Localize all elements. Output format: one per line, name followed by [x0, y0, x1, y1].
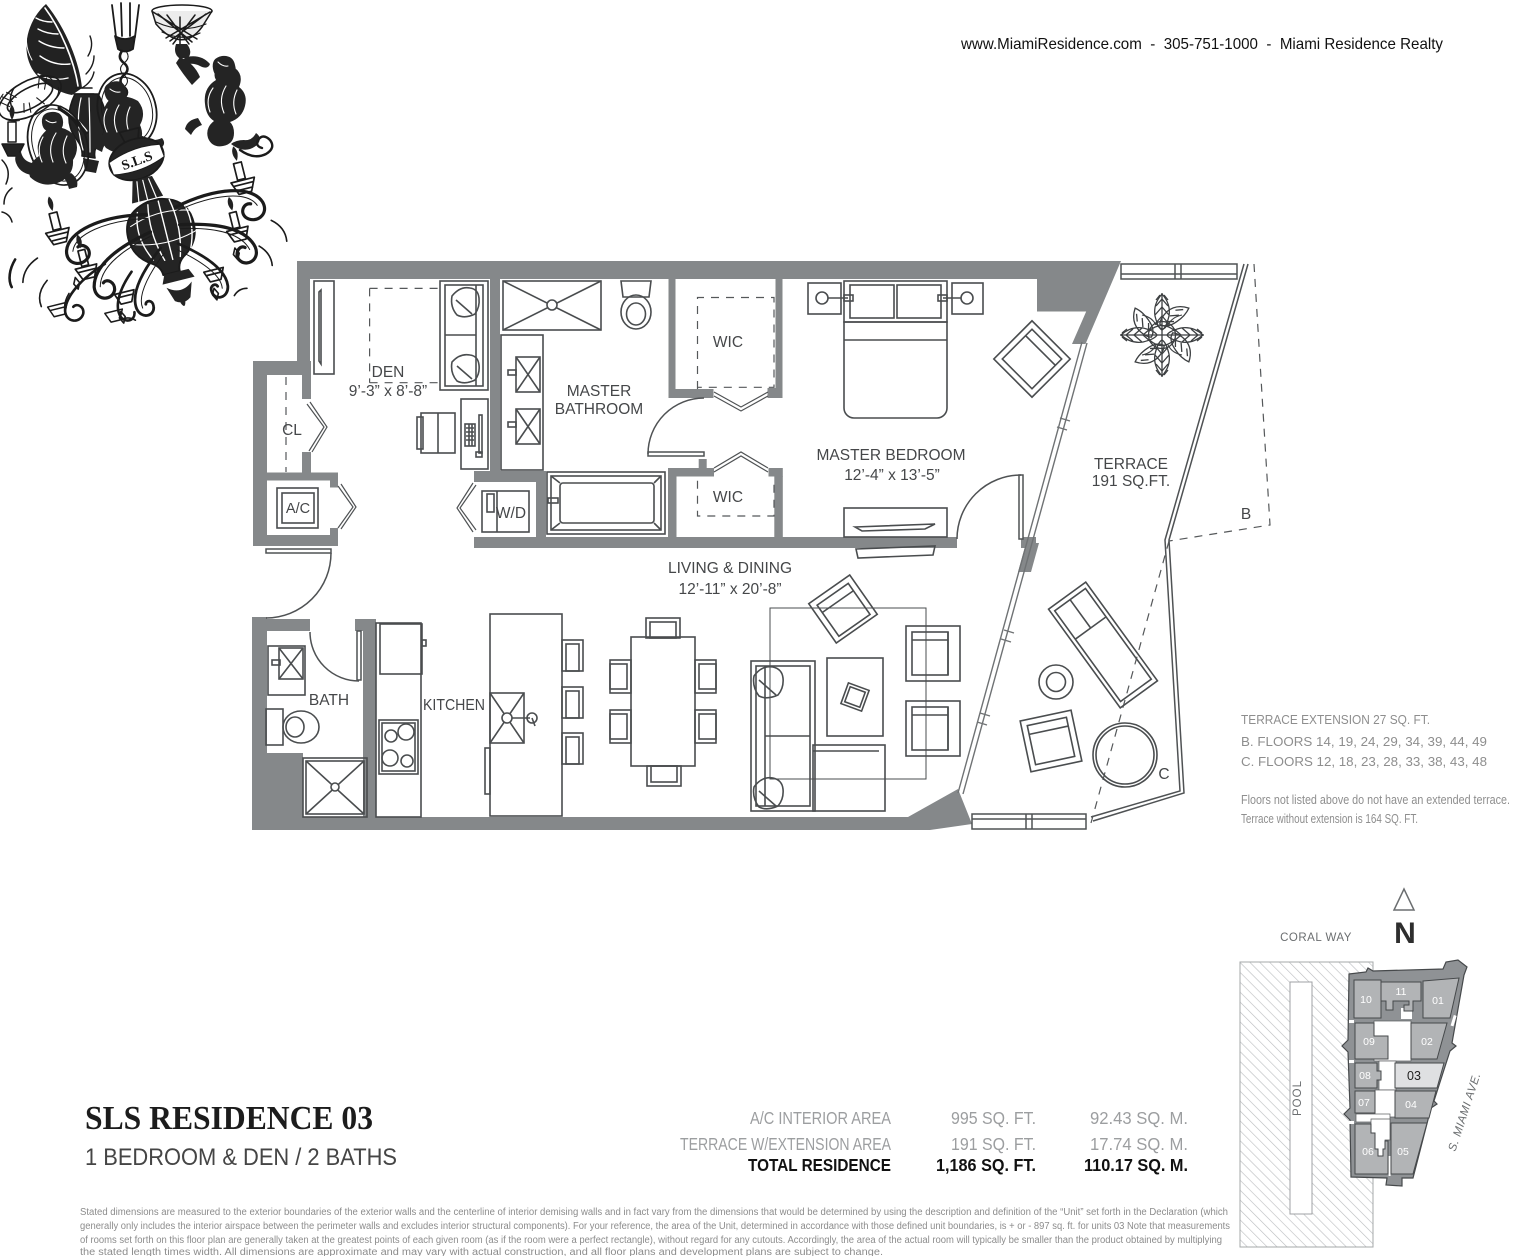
svg-text:TERRACE W/EXTENSION AREA: TERRACE W/EXTENSION AREA: [680, 1134, 891, 1154]
svg-text:B. FLOORS 14, 19, 24, 29, 34,: B. FLOORS 14, 19, 24, 29, 34, 39, 44, 49: [1241, 735, 1487, 749]
svg-text:08: 08: [1359, 1070, 1371, 1082]
svg-text:DEN: DEN: [372, 364, 405, 381]
svg-text:A/C: A/C: [286, 501, 310, 517]
svg-text:1,186 SQ. FT.: 1,186 SQ. FT.: [936, 1155, 1036, 1175]
svg-text:03: 03: [1407, 1069, 1421, 1083]
svg-text:TERRACE: TERRACE: [1094, 456, 1168, 473]
svg-text:12’-11” x 20’-8”: 12’-11” x 20’-8”: [678, 581, 781, 598]
svg-text:11: 11: [1396, 986, 1407, 998]
svg-text:06: 06: [1362, 1146, 1374, 1158]
svg-text:POOL: POOL: [1292, 1080, 1304, 1116]
svg-text:CL: CL: [282, 422, 302, 439]
svg-text:LIVING & DINING: LIVING & DINING: [668, 560, 792, 577]
svg-text:10: 10: [1360, 994, 1372, 1006]
svg-text:1 BEDROOM & DEN / 2 BATHS: 1 BEDROOM & DEN / 2 BATHS: [85, 1144, 397, 1171]
svg-text:110.17 SQ. M.: 110.17 SQ. M.: [1084, 1155, 1188, 1175]
svg-text:04: 04: [1405, 1099, 1417, 1111]
svg-text:WIC: WIC: [713, 334, 743, 351]
svg-text:9’-3” x 8’-8”: 9’-3” x 8’-8”: [349, 383, 427, 400]
svg-text:Terrace without extension is 1: Terrace without extension is 164 SQ. FT.: [1241, 812, 1418, 826]
svg-text:B: B: [1241, 506, 1251, 523]
svg-text:02: 02: [1421, 1036, 1433, 1048]
svg-text:191 SQ. FT.: 191 SQ. FT.: [951, 1134, 1036, 1154]
svg-text:BATHROOM: BATHROOM: [555, 401, 643, 418]
svg-text:01: 01: [1432, 995, 1444, 1007]
svg-text:of rooms set forth on this flo: of rooms set forth on this floor plan ar…: [80, 1235, 1222, 1246]
svg-text:TOTAL RESIDENCE: TOTAL RESIDENCE: [748, 1155, 891, 1175]
svg-text:the stated length times width.: the stated length times width. All dimen…: [80, 1247, 883, 1256]
svg-text:MASTER: MASTER: [567, 383, 632, 400]
svg-text:SLS RESIDENCE 03: SLS RESIDENCE 03: [85, 1100, 373, 1137]
svg-text:BATH: BATH: [309, 692, 349, 709]
svg-text:KITCHEN: KITCHEN: [423, 697, 485, 714]
svg-text:MASTER BEDROOM: MASTER BEDROOM: [817, 447, 966, 464]
svg-text:S. MIAMI AVE.: S. MIAMI AVE.: [1447, 1071, 1484, 1153]
svg-text:CORAL WAY: CORAL WAY: [1280, 932, 1352, 944]
svg-text:191 SQ.FT.: 191 SQ.FT.: [1092, 473, 1170, 490]
svg-text:Floors not listed above do not: Floors not listed above do not have an e…: [1241, 793, 1510, 807]
svg-text:W/D: W/D: [496, 505, 526, 522]
svg-text:09: 09: [1363, 1036, 1375, 1048]
svg-text:TERRACE EXTENSION 27 SQ. FT.: TERRACE EXTENSION 27 SQ. FT.: [1241, 713, 1430, 727]
svg-text:07: 07: [1358, 1097, 1370, 1109]
svg-text:C: C: [1158, 766, 1169, 783]
svg-text:N: N: [1394, 917, 1416, 950]
svg-text:generally only includes the in: generally only includes the interior air…: [80, 1221, 1230, 1232]
svg-text:WIC: WIC: [713, 489, 743, 506]
svg-text:12’-4” x 13’-5”: 12’-4” x 13’-5”: [844, 467, 940, 484]
svg-text:05: 05: [1397, 1146, 1409, 1158]
svg-text:C. FLOORS 12, 18, 23, 28, 33,: C. FLOORS 12, 18, 23, 28, 33, 38, 43, 48: [1241, 755, 1487, 769]
svg-text:www.MiamiResidence.com - 305: www.MiamiResidence.com - 305-751-1000 - …: [960, 36, 1443, 53]
svg-text:17.74 SQ. M.: 17.74 SQ. M.: [1090, 1134, 1188, 1154]
svg-text:Stated dimensions are measured: Stated dimensions are measured to the ex…: [80, 1207, 1228, 1218]
svg-text:995 SQ. FT.: 995 SQ. FT.: [951, 1108, 1036, 1128]
svg-text:92.43 SQ. M.: 92.43 SQ. M.: [1090, 1108, 1188, 1128]
svg-text:A/C INTERIOR AREA: A/C INTERIOR AREA: [750, 1108, 891, 1128]
